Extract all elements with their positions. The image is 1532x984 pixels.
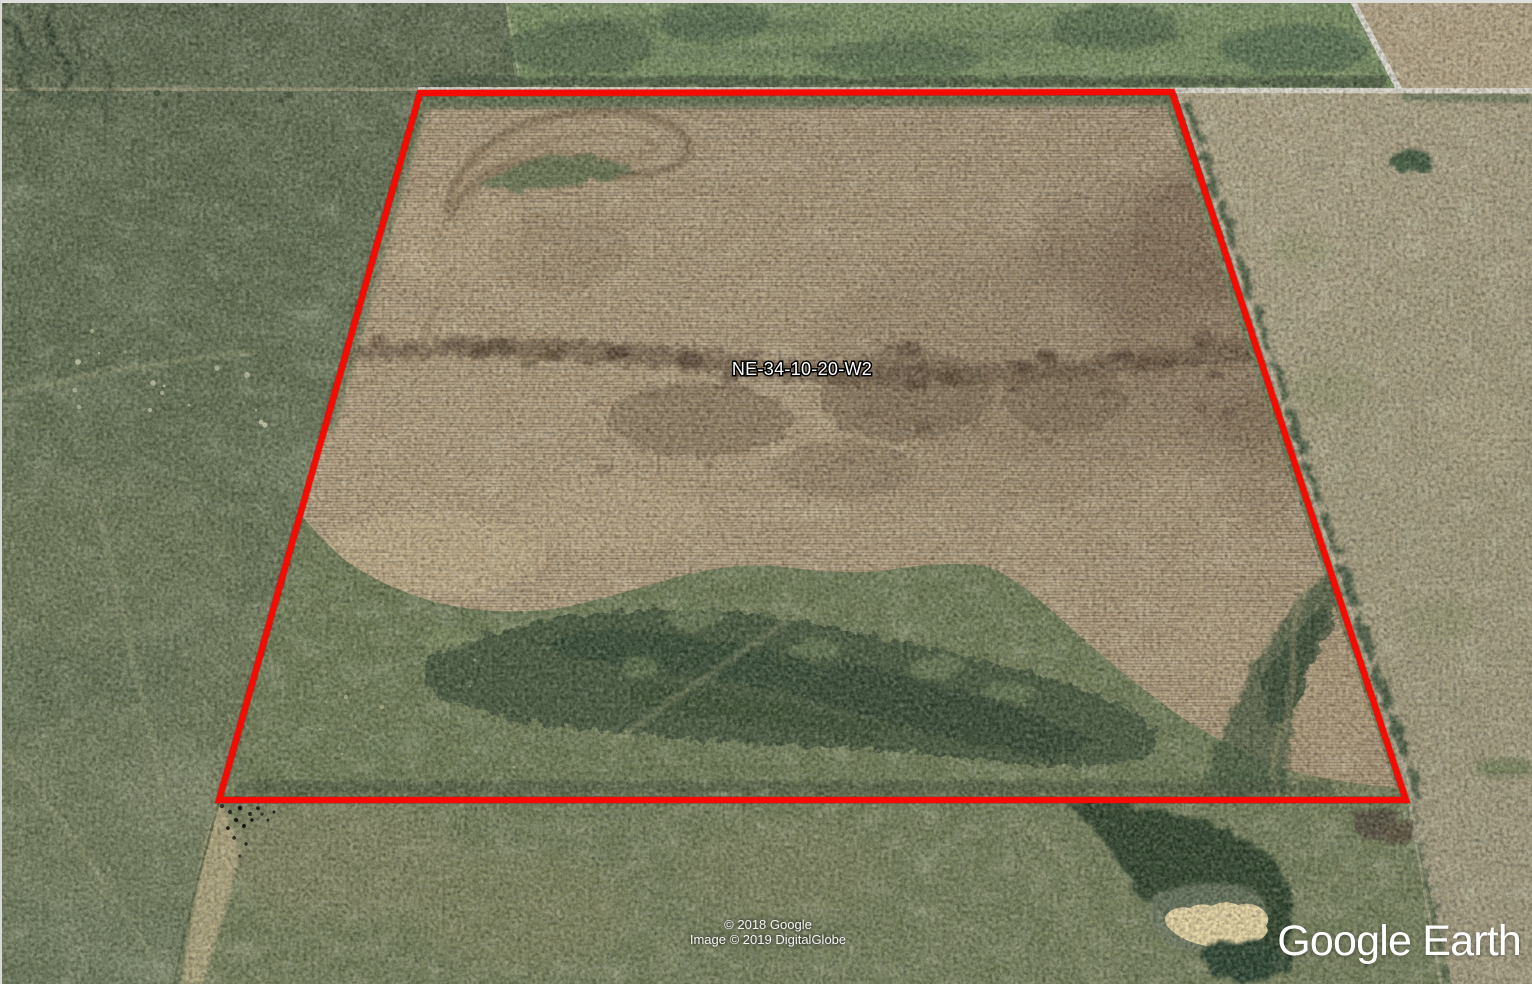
svg-text:Image © 2019 DigitalGlobe: Image © 2019 DigitalGlobe <box>690 932 846 947</box>
svg-text:Google Earth: Google Earth <box>1277 917 1521 965</box>
svg-text:© 2018 Google: © 2018 Google <box>724 917 812 932</box>
svg-text:NE-34-10-20-W2: NE-34-10-20-W2 <box>732 359 872 379</box>
